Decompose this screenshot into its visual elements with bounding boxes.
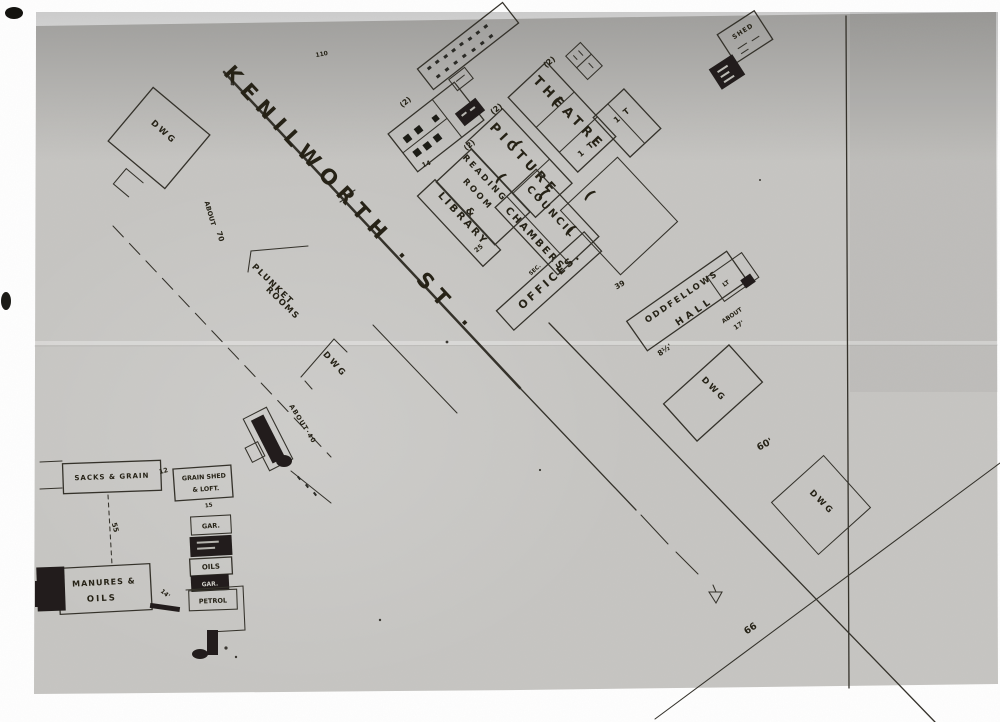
manures-label-line2: OILS bbox=[87, 593, 117, 605]
yard-blot bbox=[192, 649, 208, 659]
oils-box-label: OILS bbox=[202, 563, 220, 572]
petrol-label: PETROL bbox=[199, 597, 228, 606]
dark-box-illegible bbox=[190, 535, 233, 557]
gar-label-top: GAR. bbox=[202, 522, 220, 531]
paper-grain bbox=[36, 12, 998, 692]
gar-label-bottom: GAR. bbox=[201, 581, 218, 589]
edge-blot bbox=[1, 292, 11, 310]
plan-canvas: KENILWORTH · ST · THEATRE (2) 1 T 1 T bbox=[0, 0, 1000, 722]
edge-dark-box bbox=[35, 581, 44, 607]
fold-crease bbox=[34, 341, 998, 345]
corner-blot bbox=[5, 7, 23, 19]
petrol-dark-bar bbox=[207, 630, 218, 655]
scanned-plan: KENILWORTH · ST · THEATRE (2) 1 T 1 T bbox=[0, 0, 1000, 722]
